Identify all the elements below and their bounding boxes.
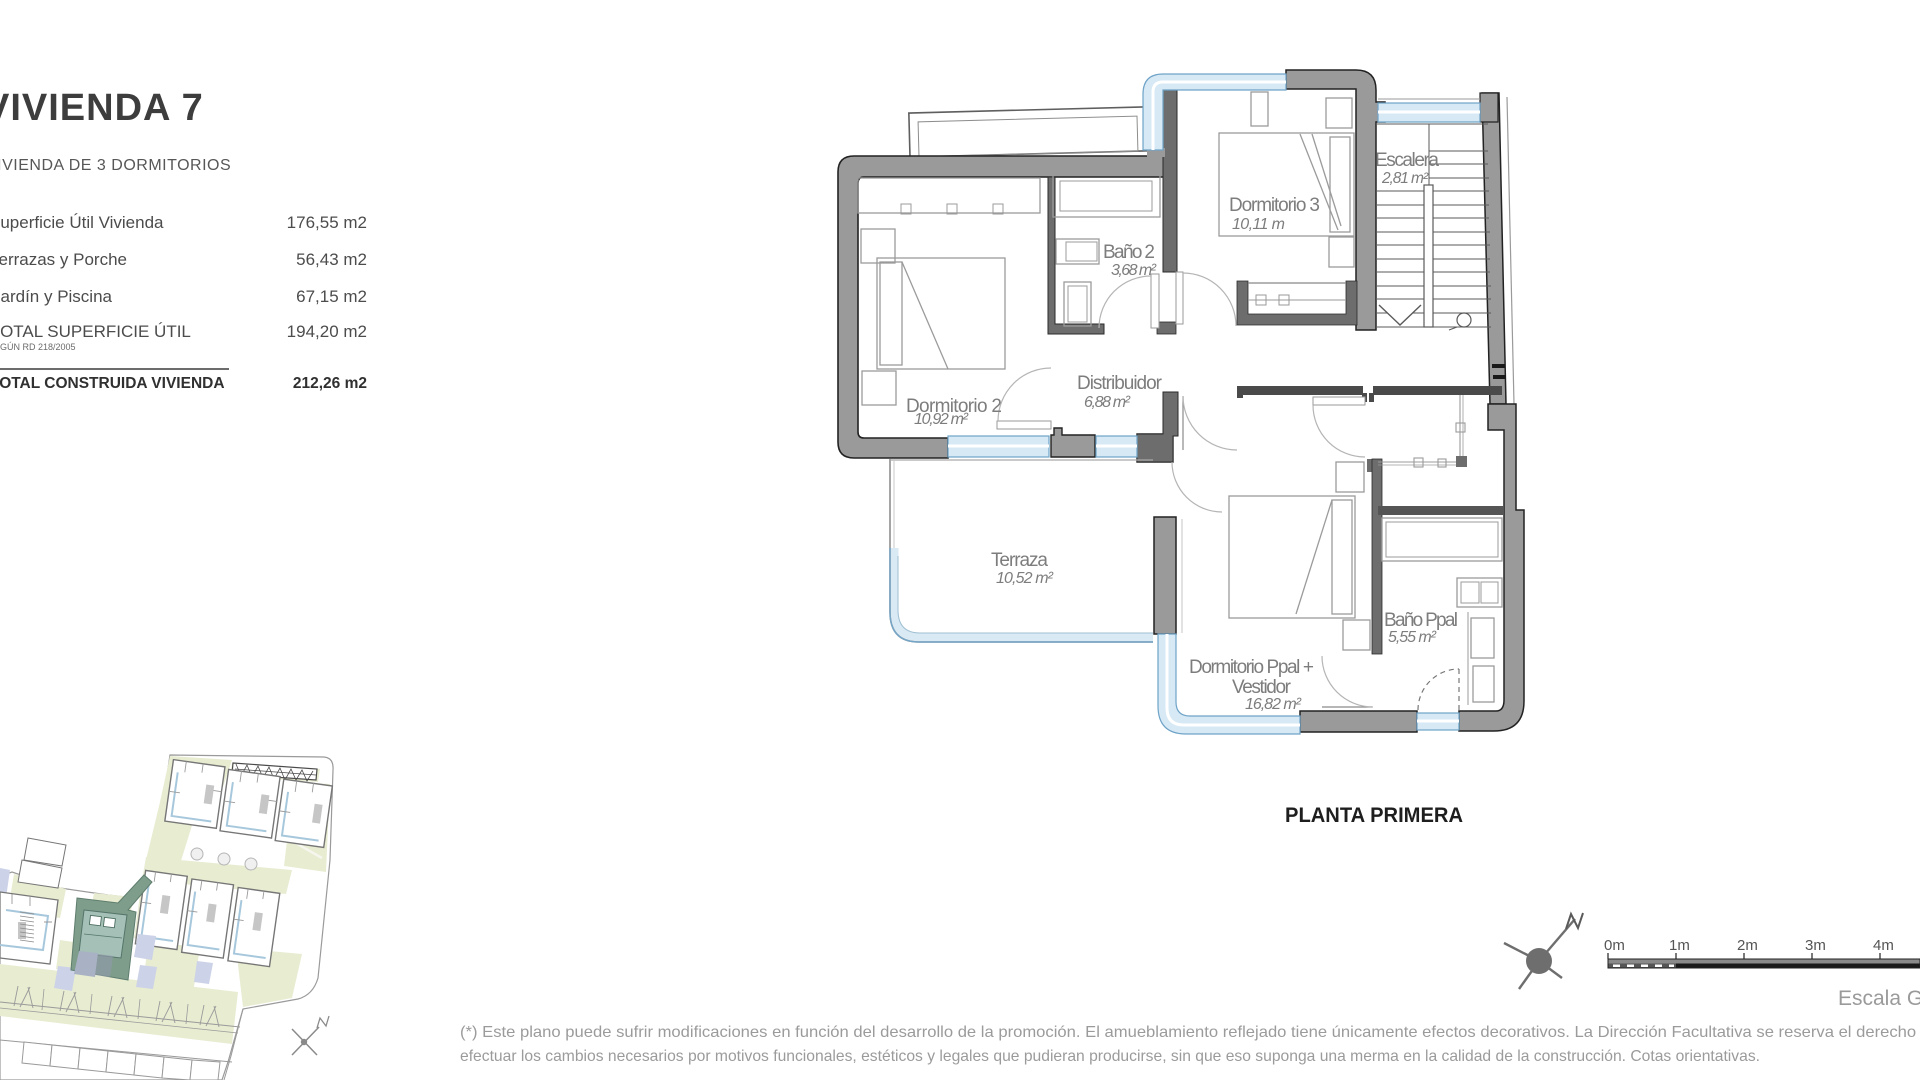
svg-text:VIVIENDA DE 3 DORMITORIOS: VIVIENDA DE 3 DORMITORIOS <box>0 157 231 174</box>
svg-text:6,88 m²: 6,88 m² <box>1084 394 1131 411</box>
svg-text:56,43 m2: 56,43 m2 <box>296 250 367 269</box>
svg-text:3,68 m²: 3,68 m² <box>1111 262 1157 279</box>
svg-text:0m: 0m <box>1604 937 1625 954</box>
svg-text:Jardín y Piscina: Jardín y Piscina <box>0 287 113 306</box>
svg-text:Terrazas y Porche: Terrazas y Porche <box>0 250 127 269</box>
svg-text:4m: 4m <box>1873 937 1894 954</box>
svg-text:176,55 m2: 176,55 m2 <box>287 213 367 232</box>
svg-text:10,52 m²: 10,52 m² <box>996 570 1054 587</box>
svg-text:Escala Gr: Escala Gr <box>1838 987 1920 1010</box>
svg-text:PLANTA PRIMERA: PLANTA PRIMERA <box>1285 804 1463 827</box>
svg-text:212,26 m2: 212,26 m2 <box>293 375 367 392</box>
svg-text:2m: 2m <box>1737 937 1758 954</box>
svg-text:SEGÚN RD 218/2005: SEGÚN RD 218/2005 <box>0 342 76 352</box>
svg-text:TOTAL CONSTRUIDA VIVIENDA: TOTAL CONSTRUIDA VIVIENDA <box>0 375 225 392</box>
svg-text:3m: 3m <box>1805 937 1826 954</box>
svg-text:67,15 m2: 67,15 m2 <box>296 287 367 306</box>
svg-text:TOTAL SUPERFICIE ÚTIL: TOTAL SUPERFICIE ÚTIL <box>0 322 191 341</box>
svg-text:10,11 m: 10,11 m <box>1232 216 1285 233</box>
svg-text:efectuar los cambios necesario: efectuar los cambios necesarios por moti… <box>460 1048 1760 1065</box>
svg-text:Dormitorio Ppal +: Dormitorio Ppal + <box>1189 657 1314 678</box>
svg-text:Superficie Útil Vivienda: Superficie Útil Vivienda <box>0 213 164 232</box>
svg-text:16,82 m²: 16,82 m² <box>1245 696 1302 713</box>
svg-text:194,20 m2: 194,20 m2 <box>287 322 367 341</box>
svg-text:Dormitorio 3: Dormitorio 3 <box>1229 195 1320 216</box>
svg-text:5,55 m²: 5,55 m² <box>1388 629 1437 646</box>
svg-text:Terraza: Terraza <box>991 550 1048 571</box>
svg-text:(*) Este plano puede sufrir mo: (*) Este plano puede sufrir modificacion… <box>460 1024 1920 1041</box>
svg-text:VIVIENDA 7: VIVIENDA 7 <box>0 87 204 129</box>
svg-text:Distribuidor: Distribuidor <box>1077 373 1163 394</box>
svg-text:10,92 m²: 10,92 m² <box>914 411 969 428</box>
svg-text:2,81 m²: 2,81 m² <box>1381 170 1429 187</box>
svg-text:Baño 2: Baño 2 <box>1103 242 1155 263</box>
svg-text:Baño Ppal: Baño Ppal <box>1384 610 1458 631</box>
svg-text:1m: 1m <box>1669 937 1690 954</box>
svg-text:Escalera: Escalera <box>1375 150 1439 171</box>
svg-text:Vestidor: Vestidor <box>1232 677 1292 698</box>
